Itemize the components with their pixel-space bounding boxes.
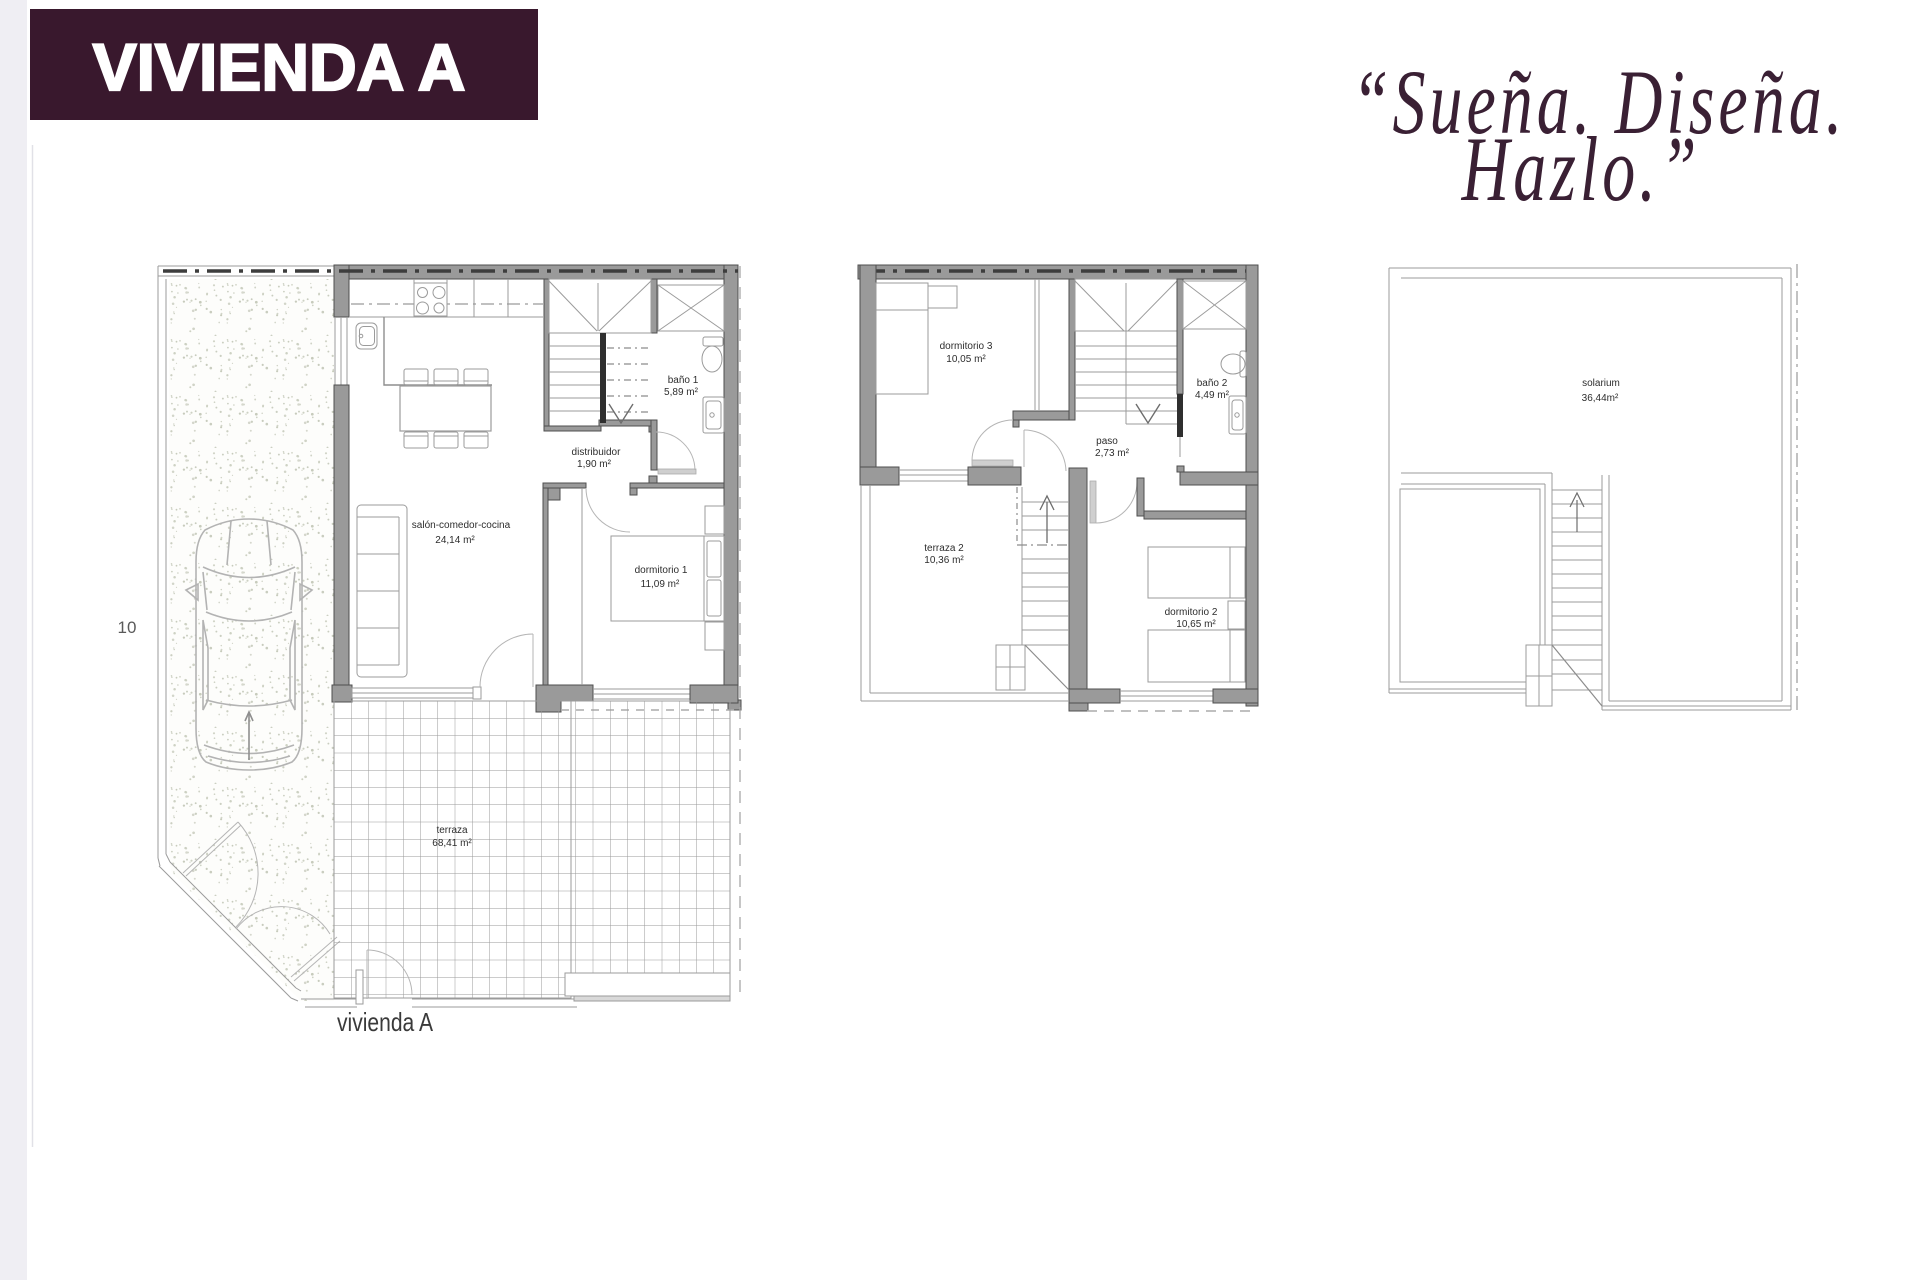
svg-text:24,14 m²: 24,14 m²	[435, 535, 475, 546]
svg-text:paso: paso	[1096, 436, 1118, 447]
svg-text:salón-comedor-cocina: salón-comedor-cocina	[412, 520, 511, 531]
svg-text:1,90 m²: 1,90 m²	[577, 459, 612, 470]
svg-text:Hazlo.”: Hazlo.”	[1461, 118, 1701, 220]
svg-text:distribuidor: distribuidor	[572, 447, 622, 458]
svg-text:baño 1: baño 1	[668, 375, 699, 386]
svg-text:terraza 2: terraza 2	[924, 543, 964, 554]
svg-text:dormitorio 2: dormitorio 2	[1165, 607, 1218, 618]
svg-text:11,09 m²: 11,09 m²	[641, 579, 680, 590]
svg-text:solarium: solarium	[1582, 378, 1620, 389]
svg-text:10,36 m²: 10,36 m²	[924, 555, 964, 566]
svg-text:36,44m²: 36,44m²	[1582, 393, 1619, 404]
svg-text:baño 2: baño 2	[1197, 378, 1228, 389]
svg-text:10,05 m²: 10,05 m²	[946, 354, 986, 365]
svg-text:VIVIENDA A: VIVIENDA A	[93, 30, 466, 104]
svg-text:vivienda A: vivienda A	[337, 1007, 434, 1037]
svg-text:terraza: terraza	[436, 825, 468, 836]
svg-text:2,73 m²: 2,73 m²	[1095, 448, 1130, 459]
svg-text:5,89 m²: 5,89 m²	[664, 387, 699, 398]
svg-text:4,49 m²: 4,49 m²	[1195, 390, 1230, 401]
svg-text:dormitorio 3: dormitorio 3	[940, 341, 993, 352]
svg-text:68,41 m²: 68,41 m²	[432, 838, 472, 849]
svg-text:10,65 m²: 10,65 m²	[1176, 619, 1216, 630]
svg-text:dormitorio 1: dormitorio 1	[635, 565, 688, 576]
svg-text:10: 10	[118, 618, 137, 637]
